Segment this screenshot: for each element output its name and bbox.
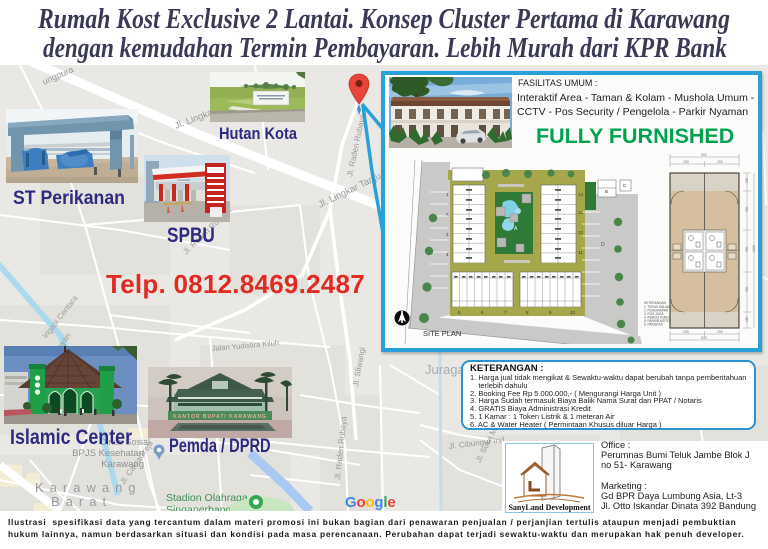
svg-text:150: 150 [745,177,749,183]
svg-text:500: 500 [701,153,707,157]
svg-text:Barat: Barat [51,494,112,509]
svg-text:Karawang: Karawang [35,480,142,495]
svg-text:10: 10 [570,310,576,315]
svg-text:SITE PLAN: SITE PLAN [423,329,461,338]
svg-text:Karawang: Karawang [101,459,144,470]
svg-text:500: 500 [701,336,707,340]
svg-text:1200: 1200 [752,245,756,252]
svg-text:250: 250 [717,330,723,334]
svg-text:D: D [601,242,605,248]
svg-text:150: 150 [745,316,749,322]
svg-text:11: 11 [578,250,583,255]
svg-text:330: 330 [745,246,749,252]
svg-text:12: 12 [578,230,584,235]
svg-text:Stadion Olahraga: Stadion Olahraga [166,492,248,504]
svg-text:Jl. Sliwangi: Jl. Sliwangi [351,346,367,387]
svg-text:300: 300 [745,286,749,292]
svg-text:14: 14 [578,192,584,197]
svg-text:6. PANGKAS: 6. PANGKAS [644,323,663,327]
svg-text:B: B [605,189,608,194]
svg-text:KANTOR BUPATI KARAWANG: KANTOR BUPATI KARAWANG [173,414,267,420]
svg-text:300: 300 [745,206,749,212]
svg-text:250: 250 [683,330,689,334]
svg-text:250: 250 [717,160,723,164]
svg-text:250: 250 [683,160,689,164]
svg-text:13: 13 [578,210,584,215]
